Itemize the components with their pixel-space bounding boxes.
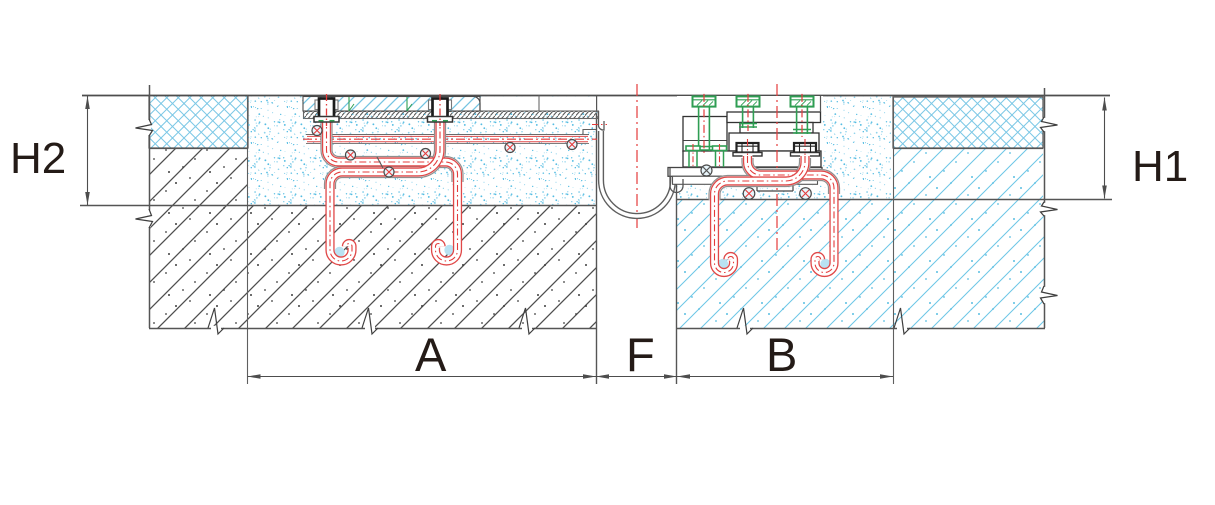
svg-text:B: B [766, 328, 797, 381]
svg-text:F: F [626, 328, 655, 381]
svg-text:A: A [415, 328, 447, 381]
svg-text:H2: H2 [10, 134, 66, 183]
svg-text:H1: H1 [1132, 142, 1188, 191]
